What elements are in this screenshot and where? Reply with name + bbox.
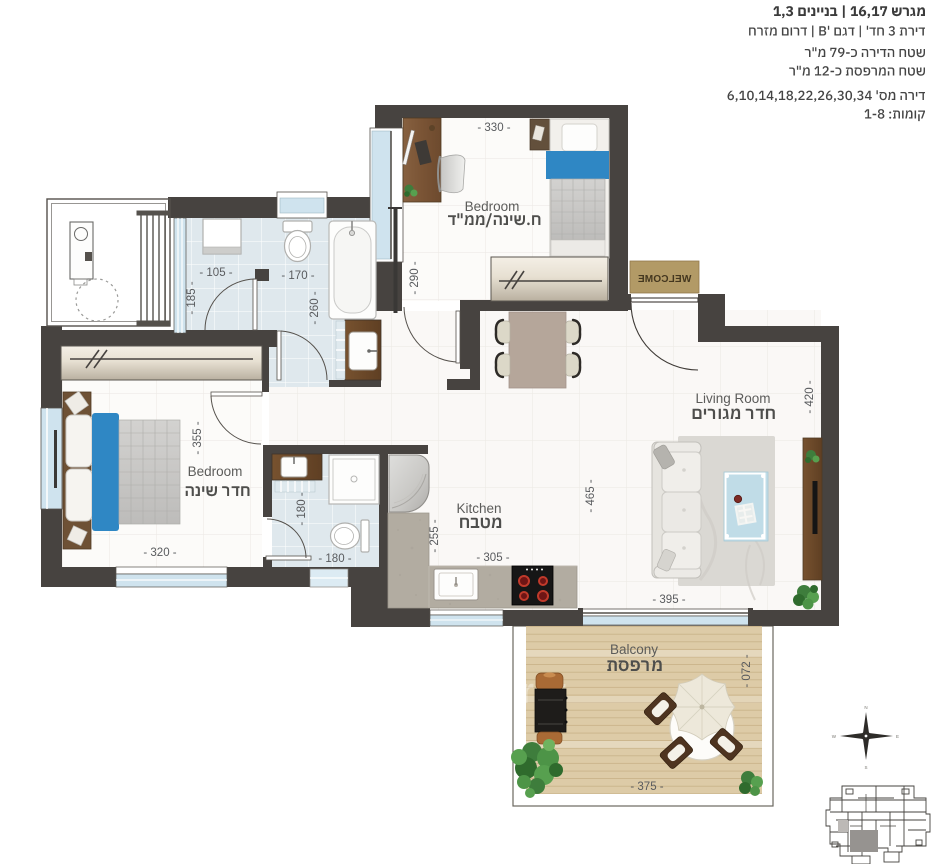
- svg-text:WELCOME: WELCOME: [638, 274, 692, 285]
- svg-text:- 465 -: - 465 -: [585, 479, 597, 512]
- svg-text:- 290 -: - 290 -: [409, 261, 421, 294]
- svg-text:- 180 -: - 180 -: [296, 492, 308, 525]
- svg-text:Balcony: Balcony: [610, 642, 658, 657]
- svg-text:- 260 -: - 260 -: [309, 291, 321, 324]
- svg-text:- 420 -: - 420 -: [804, 380, 816, 413]
- svg-text:- 185 -: - 185 -: [186, 281, 198, 314]
- svg-text:- 330 -: - 330 -: [477, 122, 510, 134]
- svg-text:- 072 -: - 072 -: [741, 654, 753, 687]
- svg-text:S: S: [864, 765, 867, 770]
- svg-text:- 255 -: - 255 -: [429, 519, 441, 552]
- svg-text:- 170 -: - 170 -: [281, 270, 314, 282]
- svg-text:- 375 -: - 375 -: [630, 781, 663, 793]
- svg-text:N: N: [864, 705, 867, 710]
- svg-text:- 355 -: - 355 -: [192, 421, 204, 454]
- svg-text:- 105 -: - 105 -: [199, 267, 232, 279]
- svg-text:- 180 -: - 180 -: [318, 553, 351, 565]
- svg-text:Bedroom: Bedroom: [188, 464, 243, 479]
- svg-text:E: E: [896, 734, 899, 739]
- svg-text:Living Room: Living Room: [695, 391, 770, 406]
- svg-text:W: W: [832, 734, 837, 739]
- svg-text:- 395 -: - 395 -: [652, 594, 685, 606]
- svg-text:Bedroom: Bedroom: [465, 199, 520, 214]
- svg-text:- 305 -: - 305 -: [476, 552, 509, 564]
- svg-text:- 320 -: - 320 -: [143, 547, 176, 559]
- svg-text:Kitchen: Kitchen: [456, 501, 501, 516]
